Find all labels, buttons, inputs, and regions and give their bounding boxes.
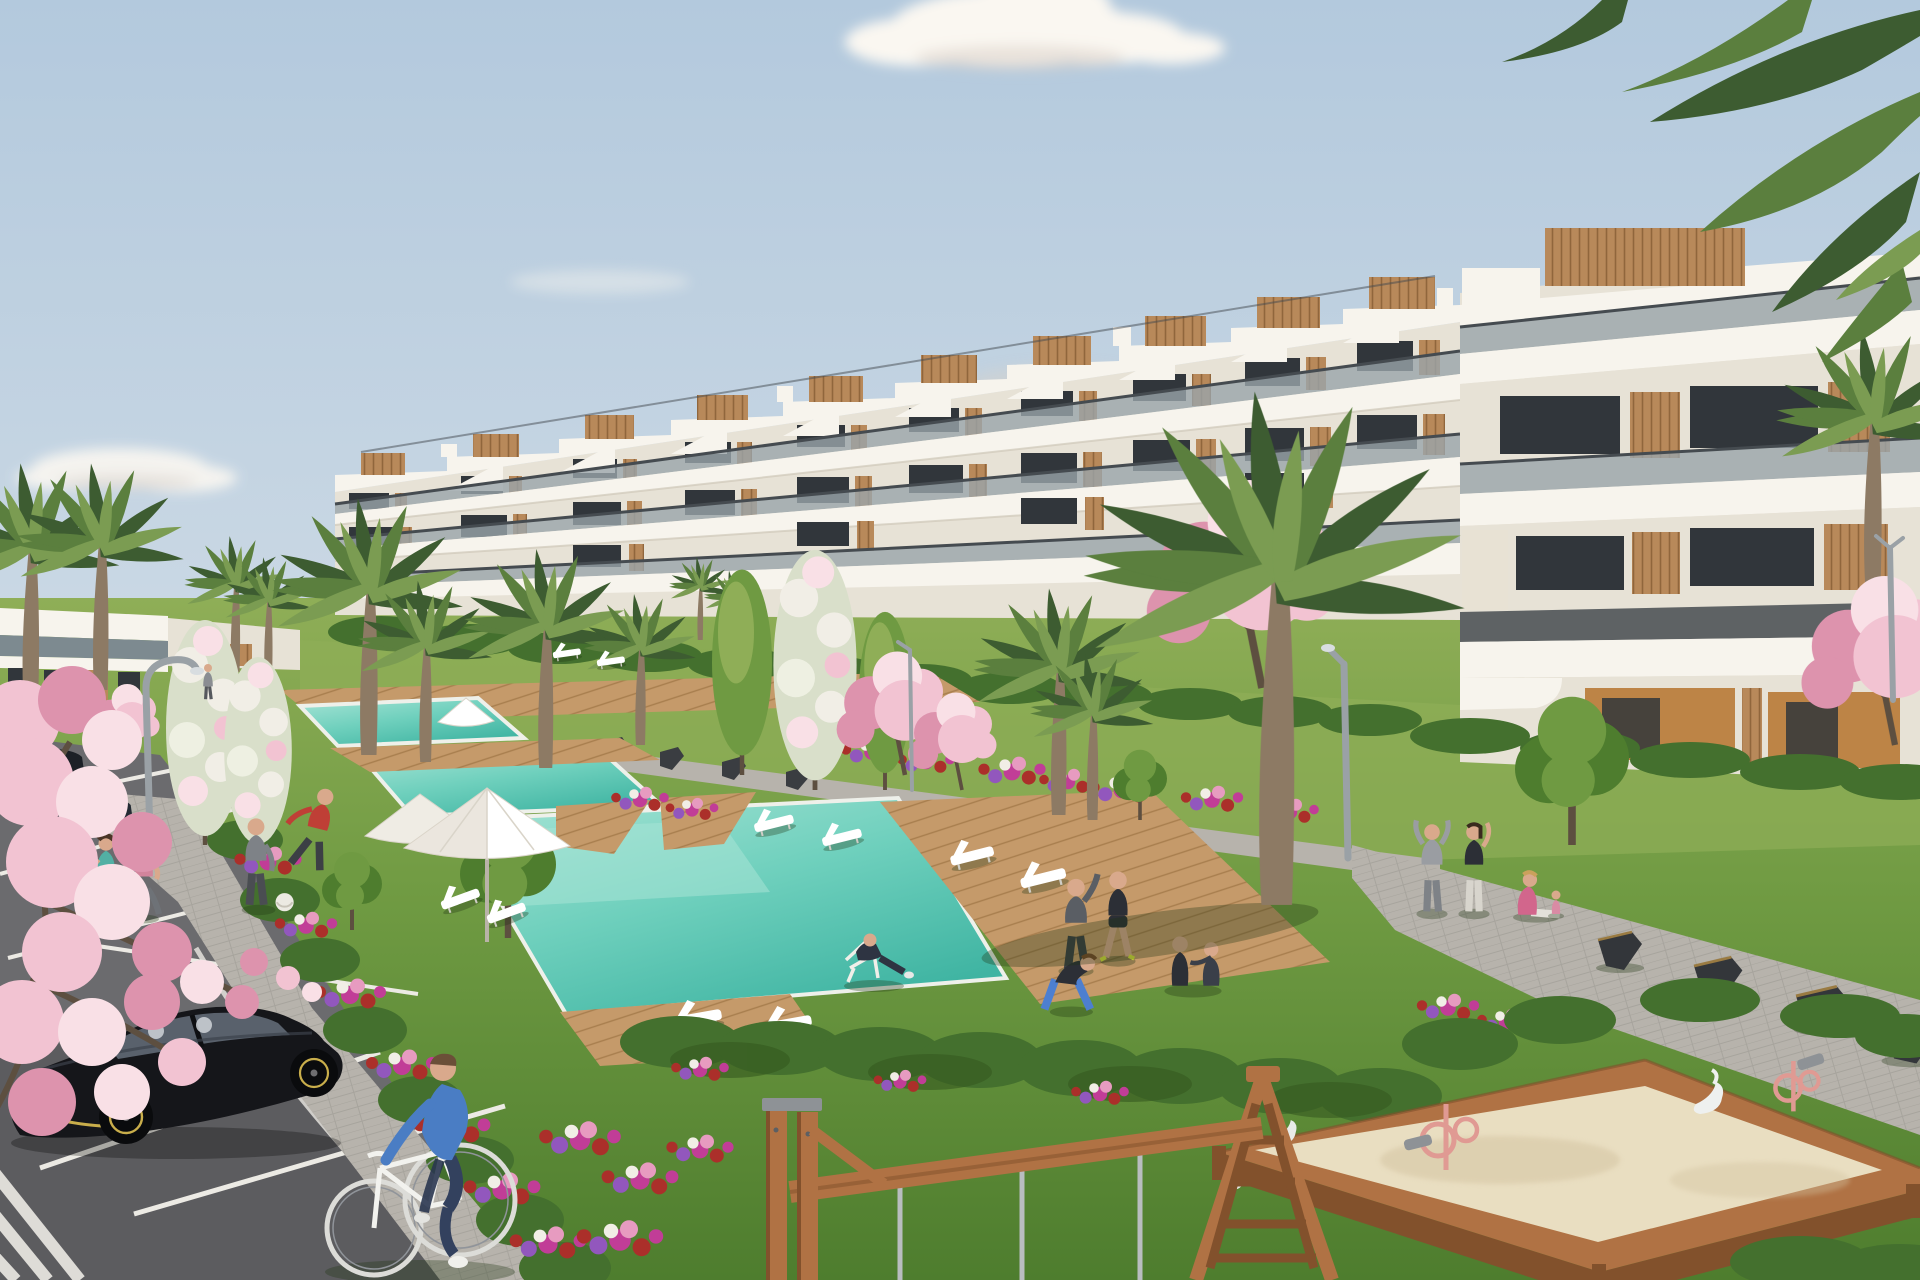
near-roof-wood-box — [1545, 228, 1745, 286]
scene-canvas — [0, 0, 1920, 1280]
render-image — [0, 0, 1920, 1280]
apartment-building-near-wing — [1460, 228, 1920, 782]
